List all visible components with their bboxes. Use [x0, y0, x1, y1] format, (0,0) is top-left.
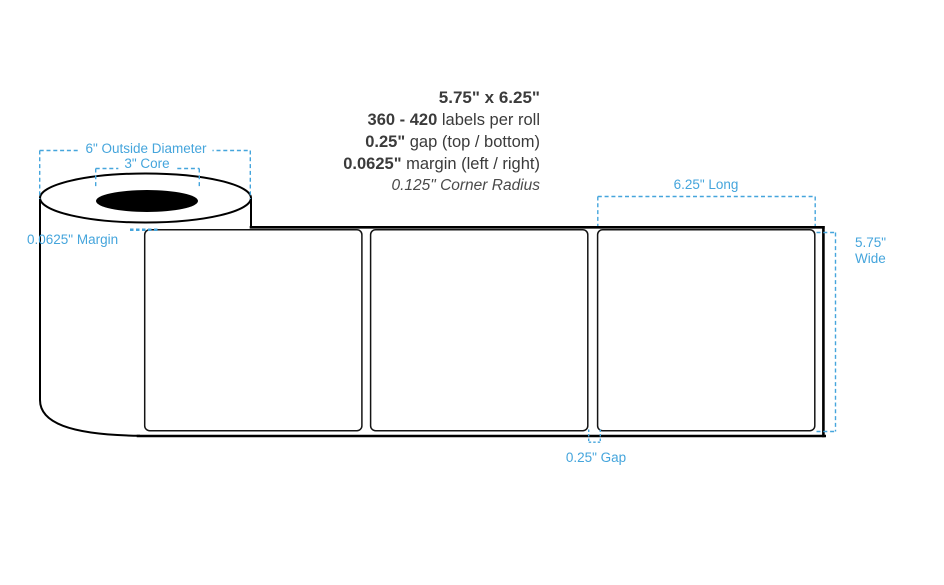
- core-label: 3" Core: [118, 156, 175, 172]
- spec-corner-radius: 0.125" Corner Radius: [343, 175, 540, 197]
- edge-margin-label: 0.0625" Margin: [27, 232, 118, 248]
- label-1: [145, 230, 362, 431]
- spec-gap-text: gap (top / bottom): [405, 133, 540, 151]
- outside-diameter-label: 6" Outside Diameter: [79, 141, 212, 157]
- spec-margin-text: margin (left / right): [402, 155, 540, 173]
- label-width-line1: 5.75": [855, 235, 886, 251]
- label-2: [371, 230, 588, 431]
- label-width-label: 5.75" Wide: [855, 235, 886, 267]
- label-width-line2: Wide: [855, 251, 886, 267]
- label-length-label: 6.25" Long: [674, 177, 739, 193]
- roll-core-hole: [96, 190, 198, 212]
- spec-block: 5.75" x 6.25" 360 - 420 labels per roll …: [343, 87, 540, 197]
- spec-margin-value: 0.0625": [343, 155, 401, 173]
- label-gap-label: 0.25" Gap: [566, 450, 626, 466]
- spec-quantity-text: labels per roll: [437, 111, 540, 129]
- label-roll-spec-diagram: 5.75" x 6.25" 360 - 420 labels per roll …: [0, 0, 944, 585]
- labels: [145, 230, 815, 431]
- spec-gap-value: 0.25": [365, 133, 405, 151]
- spec-gap: 0.25" gap (top / bottom): [343, 131, 540, 153]
- spec-quantity: 360 - 420 labels per roll: [343, 109, 540, 131]
- spec-quantity-value: 360 - 420: [368, 111, 438, 129]
- spec-size: 5.75" x 6.25": [343, 87, 540, 109]
- spec-margin: 0.0625" margin (left / right): [343, 153, 540, 175]
- label-3: [598, 230, 815, 431]
